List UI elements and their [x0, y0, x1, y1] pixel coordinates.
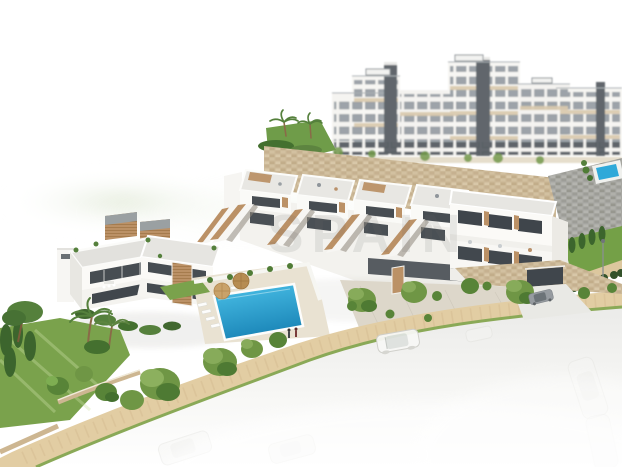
watermark-text: SPAIN: [267, 204, 468, 264]
tree: [269, 332, 287, 348]
ground-floor-glazing: [334, 142, 620, 155]
background-apartment-blocks: [330, 55, 622, 164]
tree: [95, 383, 119, 402]
tree: [120, 390, 144, 410]
tree: [140, 368, 180, 401]
tree: [203, 348, 237, 376]
tree: [401, 281, 427, 303]
scene-svg: SPAIN: [0, 0, 622, 467]
parasol: [214, 283, 230, 299]
tree: [241, 339, 263, 358]
render-image: SPAIN: [0, 0, 622, 467]
tree: [461, 278, 479, 294]
tree: [75, 366, 93, 382]
garage-door: [527, 267, 563, 287]
parasol: [233, 273, 249, 289]
